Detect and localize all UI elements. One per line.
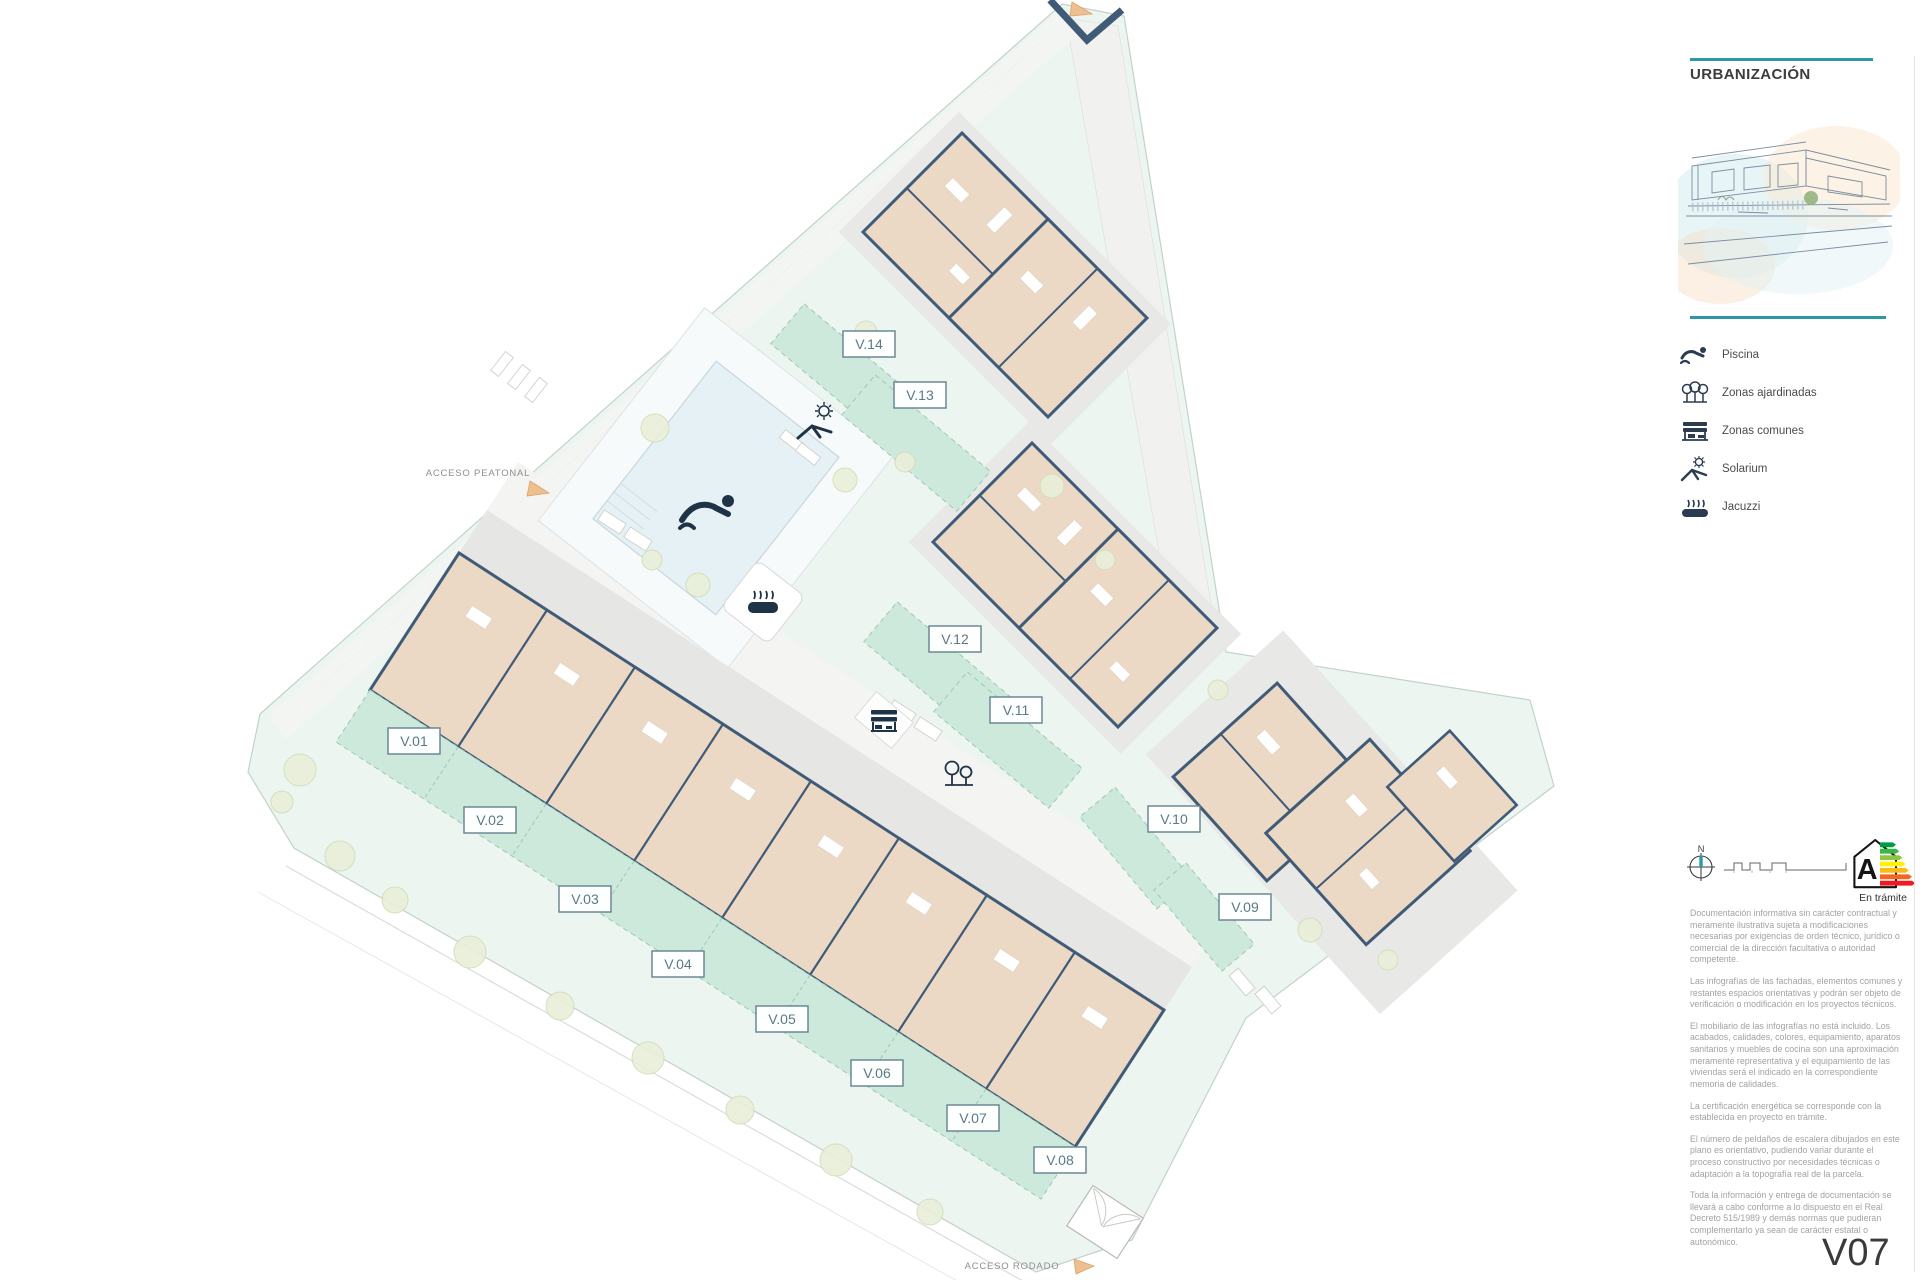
svg-text:V.08: V.08 [1046,1152,1074,1168]
panel-divider [1914,56,1915,1272]
panel-rule-bottom [1690,316,1886,319]
svg-text:V.02: V.02 [476,812,504,828]
unit-label-v03: V.03 [559,886,611,912]
unit-label-v14: V.14 [843,331,895,357]
legend-item-zonas-ajardinadas: Zonas ajardinadas [1678,374,1913,412]
energy-rating-icon: A [1848,836,1920,892]
legend-item-jacuzzi: Jacuzzi [1678,488,1913,526]
svg-text:V.04: V.04 [664,956,692,972]
unit-label-v07: V.07 [947,1105,999,1131]
svg-text:V.06: V.06 [863,1065,891,1081]
unit-label-v13: V.13 [894,382,946,408]
compass-and-scale: N [1682,840,1852,884]
svg-text:V.07: V.07 [959,1110,987,1126]
disclaimer-paragraph: Documentación informativa sin carácter c… [1690,908,1904,966]
legend-label: Jacuzzi [1722,501,1760,513]
legend-item-solarium: Solarium [1678,450,1913,488]
legend-item-piscina: Piscina [1678,336,1913,374]
disclaimer-paragraph: El número de peldaños de escalera dibuja… [1690,1134,1904,1180]
svg-text:V.03: V.03 [571,891,599,907]
access-road-arrow-icon [1074,1259,1094,1274]
panel-rule-top [1690,58,1873,61]
legend-item-zonas-comunes: Zonas comunes [1678,412,1913,450]
unit-label-v04: V.04 [652,951,704,977]
unit-label-v10: V.10 [1148,806,1200,832]
svg-text:V.05: V.05 [768,1011,796,1027]
energy-status: En trámite [1846,892,1920,904]
svg-text:V.10: V.10 [1160,811,1188,827]
site-plan: V.01 V.02 V.03 V.04 V.05 V.06 V.07 V.08 … [0,0,1660,1280]
unit-label-v09: V.09 [1219,894,1271,920]
svg-text:V.13: V.13 [906,387,934,403]
svg-text:V.14: V.14 [855,336,883,352]
urbanization-rendering [1678,96,1900,308]
disclaimer-paragraph: El mobiliario de las infografías no está… [1690,1021,1904,1091]
jacuzzi-icon [1678,494,1712,520]
unit-label-v12: V.12 [929,626,981,652]
legend: Piscina Zonas ajardinadas [1678,336,1913,526]
panel-title: URBANIZACIÓN [1690,66,1811,83]
unit-label-v05: V.05 [756,1006,808,1032]
disclaimer-paragraph: La certificación energética se correspon… [1690,1101,1904,1124]
unit-label-v02: V.02 [464,807,516,833]
pool-icon [1678,343,1712,367]
legend-label: Piscina [1722,349,1759,361]
disclaimer-block: Documentación informativa sin carácter c… [1690,908,1904,1258]
svg-text:V.09: V.09 [1231,899,1259,915]
access-pedestrian-label: ACCESO PEATONAL [426,468,531,479]
disclaimer-paragraph: Las infografías de las fachadas, element… [1690,976,1904,1011]
compass-icon [1687,853,1715,881]
unit-label-v11: V.11 [990,697,1042,723]
unit-label-v08: V.08 [1034,1147,1086,1173]
svg-text:V.01: V.01 [400,733,428,749]
access-road-label: ACCESO RODADO [965,1261,1060,1272]
energy-letter: A [1857,854,1878,886]
plan-sheet: V.01 V.02 V.03 V.04 V.05 V.06 V.07 V.08 … [0,0,1920,1280]
legend-label: Zonas ajardinadas [1722,387,1817,399]
bench-icon [1678,418,1712,444]
svg-text:V.12: V.12 [941,631,969,647]
legend-label: Zonas comunes [1722,425,1804,437]
legend-label: Solarium [1722,463,1767,475]
unit-label-v01: V.01 [388,728,440,754]
sun-lounger-icon [1678,455,1712,483]
sheet-version: V07 [1822,1232,1890,1275]
energy-arrows [1880,842,1915,885]
unit-label-v06: V.06 [851,1060,903,1086]
trees-icon [1678,380,1712,406]
scale-bar [1724,863,1846,873]
svg-text:V.11: V.11 [1003,702,1030,718]
